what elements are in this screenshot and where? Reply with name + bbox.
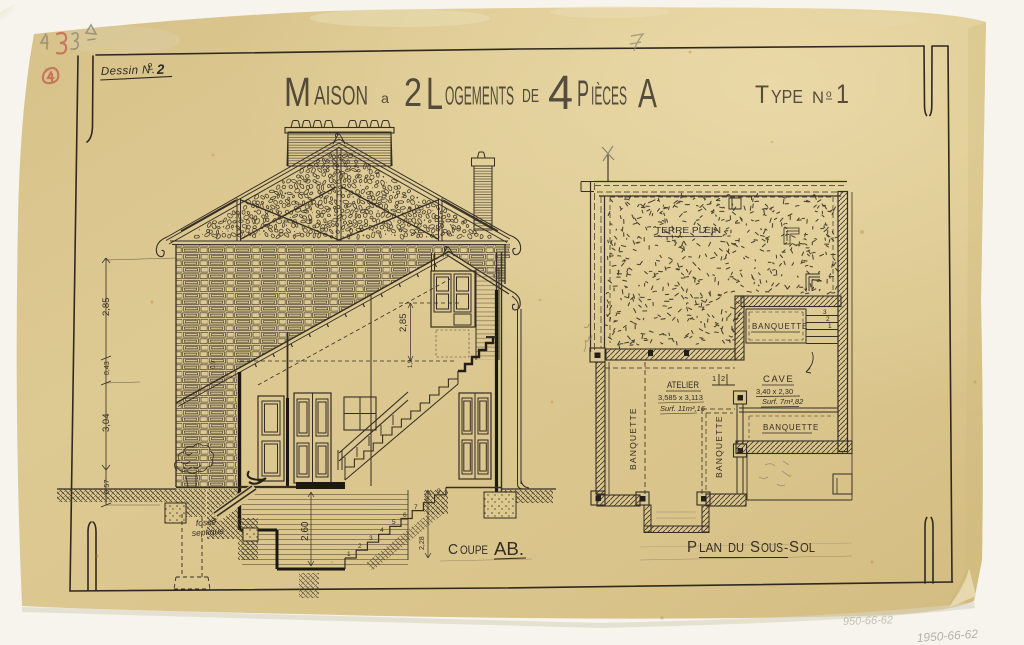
svg-text:-: - bbox=[784, 541, 788, 555]
svg-text:1: 1 bbox=[712, 374, 716, 383]
svg-text:2: 2 bbox=[721, 374, 725, 383]
svg-text:3: 3 bbox=[369, 535, 373, 542]
svg-text:Surf. 11m²,16: Surf. 11m²,16 bbox=[660, 404, 706, 413]
svg-text:4: 4 bbox=[548, 67, 573, 120]
svg-text:BANQUETTE: BANQUETTE bbox=[763, 423, 819, 432]
svg-text:6: 6 bbox=[403, 512, 407, 519]
svg-text:ATELIER: ATELIER bbox=[667, 380, 699, 390]
svg-text:BANQUETTE: BANQUETTE bbox=[628, 407, 638, 470]
svg-text:S: S bbox=[789, 539, 799, 556]
svg-text:2,60: 2,60 bbox=[300, 521, 311, 541]
svg-text:DE: DE bbox=[522, 86, 539, 106]
svg-text:2: 2 bbox=[826, 316, 830, 323]
svg-text:CAVE: CAVE bbox=[763, 374, 794, 385]
svg-text:BANQUETTE: BANQUETTE bbox=[752, 322, 808, 331]
svg-text:3,04: 3,04 bbox=[101, 414, 112, 433]
svg-text:OGEMENTS: OGEMENTS bbox=[445, 81, 514, 111]
svg-text:1: 1 bbox=[347, 551, 351, 558]
svg-text:3: 3 bbox=[823, 309, 827, 316]
svg-text:2: 2 bbox=[358, 543, 362, 550]
svg-text:Dessin N: Dessin N bbox=[101, 64, 152, 78]
svg-text:DU: DU bbox=[728, 541, 744, 555]
svg-text:0,57: 0,57 bbox=[102, 479, 111, 494]
svg-text:C: C bbox=[448, 541, 458, 558]
svg-text:L: L bbox=[426, 68, 443, 119]
svg-text:2,28: 2,28 bbox=[419, 536, 426, 550]
svg-text:o: o bbox=[826, 89, 832, 100]
svg-text:S: S bbox=[750, 539, 760, 556]
svg-text:2: 2 bbox=[156, 62, 166, 77]
svg-text:P: P bbox=[687, 539, 697, 556]
svg-text:4: 4 bbox=[380, 527, 384, 534]
svg-text:3,585 x 3,113: 3,585 x 3,113 bbox=[658, 393, 703, 402]
svg-text:7: 7 bbox=[414, 504, 418, 511]
svg-text:OL: OL bbox=[800, 541, 815, 555]
svg-text:a: a bbox=[381, 90, 389, 106]
svg-text:N: N bbox=[812, 88, 824, 107]
svg-text:OUPE: OUPE bbox=[460, 543, 488, 557]
svg-text:T: T bbox=[755, 81, 769, 109]
svg-text:A: A bbox=[638, 70, 657, 116]
svg-text:AISON: AISON bbox=[314, 81, 368, 111]
svg-text:Surf. 7m²,82: Surf. 7m²,82 bbox=[762, 397, 804, 406]
svg-text:3,40 x 2,30: 3,40 x 2,30 bbox=[756, 387, 793, 396]
svg-text:2,85: 2,85 bbox=[101, 298, 112, 317]
svg-text:5: 5 bbox=[392, 519, 396, 526]
svg-text:LAN: LAN bbox=[699, 541, 722, 555]
svg-text:950-66-62: 950-66-62 bbox=[843, 614, 894, 628]
svg-text:BANQUETTE: BANQUETTE bbox=[714, 415, 724, 478]
svg-text:2: 2 bbox=[404, 71, 422, 115]
svg-text:0,9: 0,9 bbox=[211, 360, 217, 369]
svg-text:2,85: 2,85 bbox=[398, 314, 409, 333]
svg-text:IÈCES: IÈCES bbox=[591, 81, 627, 111]
svg-text:AB.: AB. bbox=[494, 539, 524, 559]
svg-text:TERRE PLEIN: TERRE PLEIN bbox=[655, 225, 721, 235]
svg-text:YPE: YPE bbox=[771, 86, 803, 107]
svg-text:M: M bbox=[284, 69, 311, 115]
svg-text:1: 1 bbox=[828, 323, 832, 330]
svg-text:1: 1 bbox=[836, 79, 849, 109]
svg-text:P: P bbox=[577, 73, 589, 114]
svg-text:.: . bbox=[152, 64, 156, 76]
svg-text:OUS: OUS bbox=[761, 541, 783, 555]
svg-text:0,43: 0,43 bbox=[104, 361, 111, 375]
